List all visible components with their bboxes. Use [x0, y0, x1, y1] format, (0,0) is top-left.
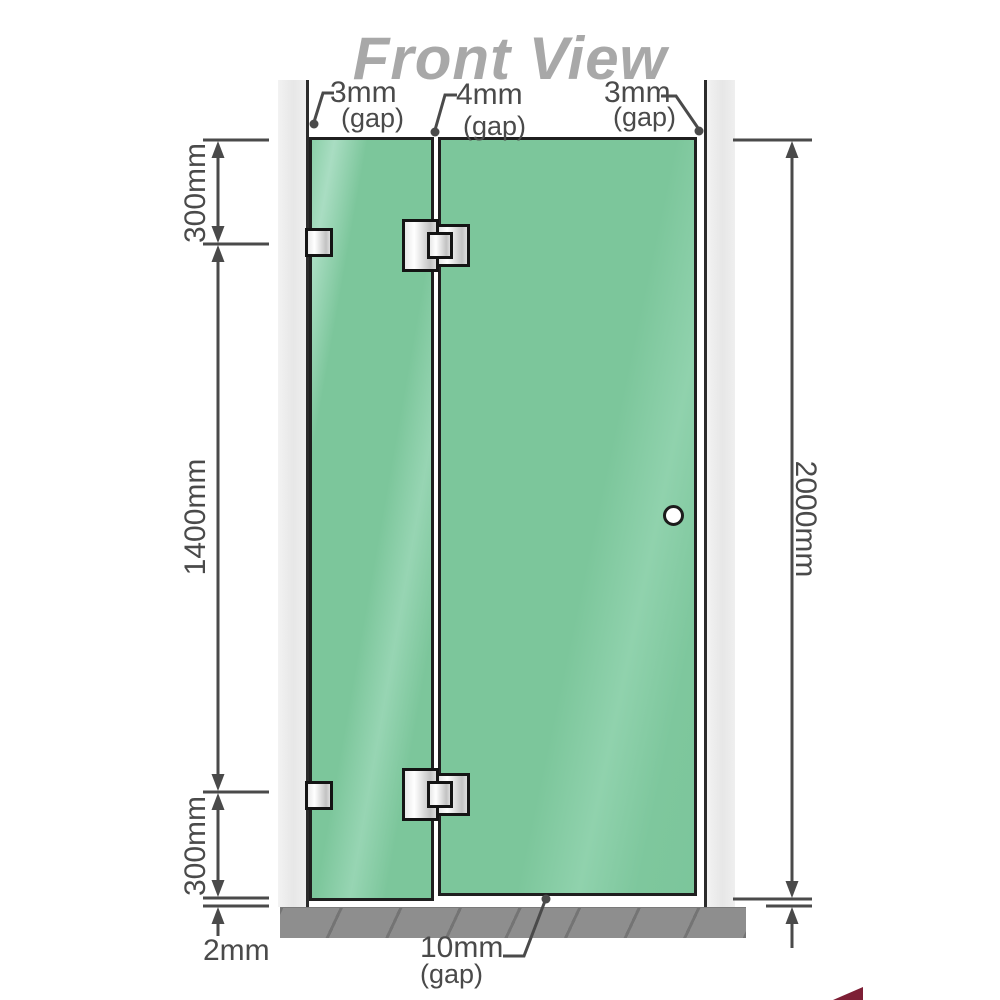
door-handle-icon: [663, 505, 684, 526]
shower-screen-front-view-diagram: Front View: [0, 0, 1000, 1000]
hinge-bottom-tab: [427, 781, 453, 808]
dim-label-bottom-300mm: 300mm: [181, 796, 211, 896]
logo-fragment-icon: [833, 987, 863, 1000]
dim-label-top-300mm: 300mm: [181, 143, 211, 243]
gap-label-bottom-suffix: (gap): [420, 961, 483, 988]
gap-label-top-mid-suffix: (gap): [463, 113, 526, 140]
gap-label-top-left-suffix: (gap): [341, 105, 404, 132]
door-glass-panel: [438, 137, 697, 896]
dim-label-2mm: 2mm: [203, 936, 270, 966]
wall-bracket-top: [305, 228, 333, 257]
right-wall: [704, 80, 735, 907]
hinge-top-tab: [427, 232, 453, 259]
dim-label-2000mm: 2000mm: [790, 461, 820, 578]
gap-label-top-mid-value: 4mm: [456, 80, 523, 110]
wall-bracket-bottom: [305, 781, 333, 810]
floor-base: [280, 907, 746, 938]
dim-label-mid-1400mm: 1400mm: [181, 459, 211, 576]
gap-label-top-right-suffix: (gap): [613, 104, 676, 131]
